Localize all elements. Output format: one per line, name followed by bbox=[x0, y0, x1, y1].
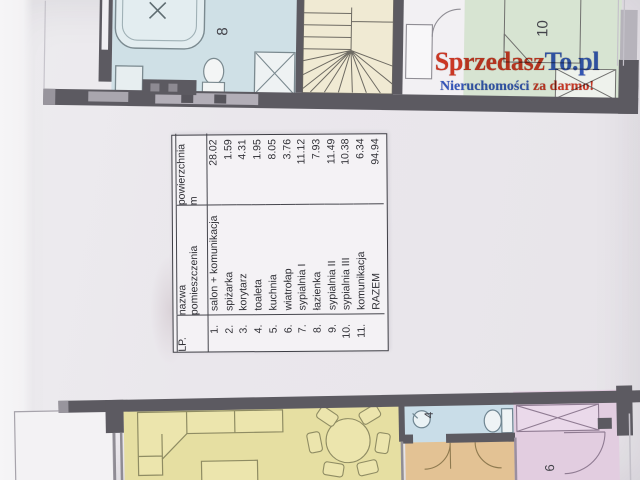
table-row: 11.komunikacja6.34 bbox=[354, 132, 370, 350]
row-name: toaleta bbox=[251, 205, 266, 315]
row-name: sypialnia I bbox=[295, 205, 310, 315]
row-lp: 2. bbox=[223, 315, 238, 351]
row-name: komunikacja bbox=[354, 204, 369, 314]
row-area: 8.05 bbox=[265, 133, 280, 205]
row-area: 1.59 bbox=[221, 133, 236, 205]
row-area: 4.31 bbox=[236, 133, 251, 205]
staircase-room bbox=[302, 0, 394, 96]
row-name: spiżarka bbox=[222, 205, 237, 315]
row-name: wiatrołap bbox=[281, 205, 296, 315]
toilet-upper-shape bbox=[202, 58, 225, 93]
row-lp: 6. bbox=[281, 315, 296, 351]
bedroom-lower-number-label: 6 bbox=[542, 464, 557, 472]
row-area: 11.12 bbox=[295, 133, 310, 205]
row-area: 94.94 bbox=[368, 132, 383, 204]
watermark-tagline-red: za darmo! bbox=[533, 79, 594, 94]
row-name: sypialnia II bbox=[325, 205, 340, 315]
header-area: powierzchnia m bbox=[176, 134, 208, 206]
washer-shape bbox=[115, 66, 142, 93]
row-lp: 4. bbox=[252, 315, 267, 351]
row-area: 11.49 bbox=[324, 133, 339, 205]
row-name: łazienka bbox=[310, 205, 325, 315]
watermark-brand: SprzedaszTo.pl bbox=[414, 48, 620, 75]
row-area: 28.02 bbox=[207, 133, 222, 205]
row-area: 3.76 bbox=[280, 133, 295, 205]
header-area-line2: m bbox=[188, 134, 200, 206]
row-lp: 1. bbox=[208, 315, 223, 351]
shower-shape bbox=[254, 52, 295, 95]
bedroom-upper-number-label: 10 bbox=[534, 20, 551, 37]
row-lp: 8. bbox=[311, 315, 326, 351]
coffee-table-shape bbox=[201, 460, 258, 480]
watermark-tagline: Nieruchomości za darmo! bbox=[414, 79, 620, 94]
row-name: sypialnia III bbox=[339, 204, 354, 314]
watermark-brand-blue: To.pl bbox=[545, 47, 600, 76]
row-lp: 3. bbox=[237, 315, 252, 351]
header-area-line1: powierzchnia bbox=[176, 134, 188, 206]
watermark-brand-red: Sprzedasz bbox=[435, 47, 545, 76]
table-row: 2.spiżarka1.59 bbox=[221, 133, 237, 351]
row-lp: 11. bbox=[355, 314, 370, 350]
row-area: 7.93 bbox=[310, 133, 325, 205]
row-lp: 7. bbox=[296, 315, 311, 351]
table-row: 3.korytarz4.31 bbox=[236, 133, 252, 351]
row-area: 6.34 bbox=[354, 132, 369, 204]
room-area-table-wrap: LP. nazwa pomieszczenia powierzchnia m 1… bbox=[171, 133, 389, 353]
table-row: 5.kuchnia8.05 bbox=[265, 133, 281, 351]
table-row: 6.wiatrołap3.76 bbox=[280, 133, 296, 351]
row-lp: 5. bbox=[267, 315, 282, 351]
row-lp bbox=[370, 314, 385, 350]
header-lp: LP. bbox=[177, 316, 208, 352]
toilet-lower-shape bbox=[484, 409, 513, 434]
row-area: 10.38 bbox=[339, 132, 354, 204]
bathroom-number-label: 8 bbox=[214, 27, 231, 36]
row-area: 1.95 bbox=[251, 133, 266, 205]
row-name: kuchnia bbox=[266, 205, 281, 315]
row-name: salon + komunikacja bbox=[207, 205, 222, 315]
lower-floor-plan: 4 6 bbox=[0, 373, 640, 480]
table-row: 10.sypialnia III10.38 bbox=[339, 132, 355, 350]
room-area-table: LP. nazwa pomieszczenia powierzchnia m 1… bbox=[171, 133, 389, 353]
watermark: SprzedaszTo.pl Nieruchomości za darmo! bbox=[414, 48, 620, 94]
terrace bbox=[14, 410, 114, 480]
table-row: 8.łazienka7.93 bbox=[310, 133, 326, 351]
row-name: RAZEM bbox=[369, 204, 384, 314]
header-name-line2: pomieszczenia bbox=[188, 206, 200, 315]
toilet-number-label: 4 bbox=[422, 411, 436, 418]
table-row-total: RAZEM94.94 bbox=[368, 132, 384, 350]
table-row: 7.sypialnia I11.12 bbox=[295, 133, 311, 351]
bathtub-shape bbox=[115, 0, 205, 49]
table-row: 4.toaleta1.95 bbox=[251, 133, 267, 351]
watermark-tagline-blue: Nieruchomości bbox=[440, 79, 529, 94]
table-row: 9.sypialnia II11.49 bbox=[324, 133, 340, 351]
row-lp: 9. bbox=[326, 315, 341, 351]
table-header-row: LP. nazwa pomieszczenia powierzchnia m bbox=[176, 134, 209, 352]
row-name: korytarz bbox=[237, 205, 252, 315]
row-lp: 10. bbox=[340, 314, 355, 350]
table-row: 1.salon + komunikacja28.02 bbox=[207, 133, 223, 351]
wall-thin-line bbox=[43, 1, 46, 89]
header-name: nazwa pomieszczenia bbox=[176, 206, 208, 316]
floor-plan-photo: 8 10 SprzedaszTo.pl Nieruchomości za dar… bbox=[0, 0, 640, 480]
